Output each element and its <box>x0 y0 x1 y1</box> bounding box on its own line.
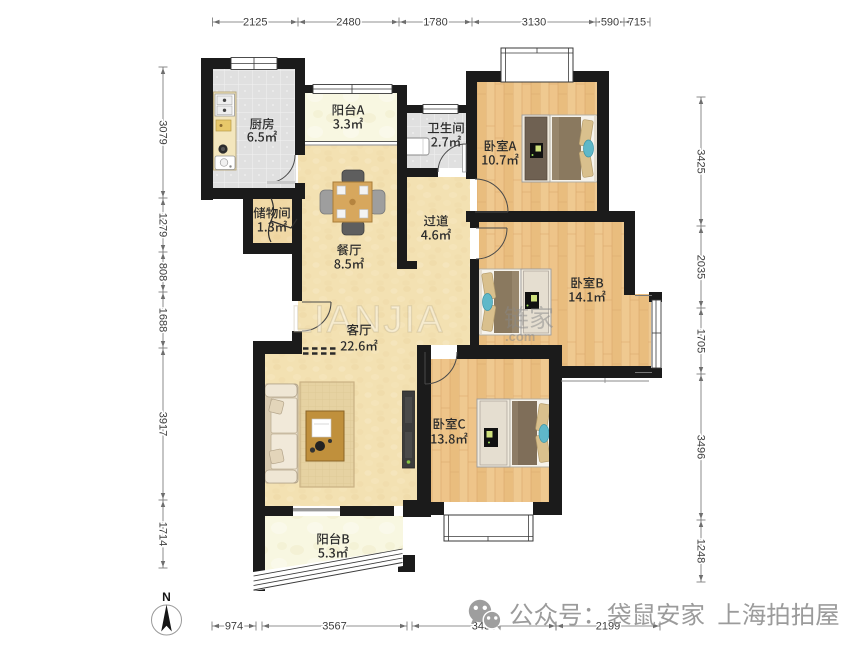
svg-text:.com: .com <box>505 329 535 344</box>
svg-text:3917: 3917 <box>157 412 169 436</box>
svg-text:715: 715 <box>628 17 646 29</box>
svg-text:2480: 2480 <box>336 17 360 29</box>
svg-text:590: 590 <box>601 17 619 29</box>
svg-text:3079: 3079 <box>157 120 169 144</box>
svg-text:3130: 3130 <box>522 17 546 29</box>
svg-text:2125: 2125 <box>243 17 267 29</box>
svg-text:1688: 1688 <box>157 308 169 332</box>
svg-text:3496: 3496 <box>695 435 707 459</box>
svg-text:1248: 1248 <box>695 539 707 563</box>
svg-text:N: N <box>162 590 171 604</box>
svg-text:974: 974 <box>225 621 243 633</box>
svg-text:1714: 1714 <box>157 522 169 546</box>
svg-text:1780: 1780 <box>423 17 447 29</box>
svg-text:808: 808 <box>157 263 169 281</box>
svg-text:1279: 1279 <box>157 213 169 237</box>
svg-text:3425: 3425 <box>695 149 707 173</box>
svg-text:2199: 2199 <box>596 621 620 633</box>
svg-text:LIANJIA: LIANJIA <box>291 299 444 341</box>
svg-text:2035: 2035 <box>695 255 707 279</box>
svg-text:3567: 3567 <box>322 621 346 633</box>
svg-text:1705: 1705 <box>695 329 707 353</box>
